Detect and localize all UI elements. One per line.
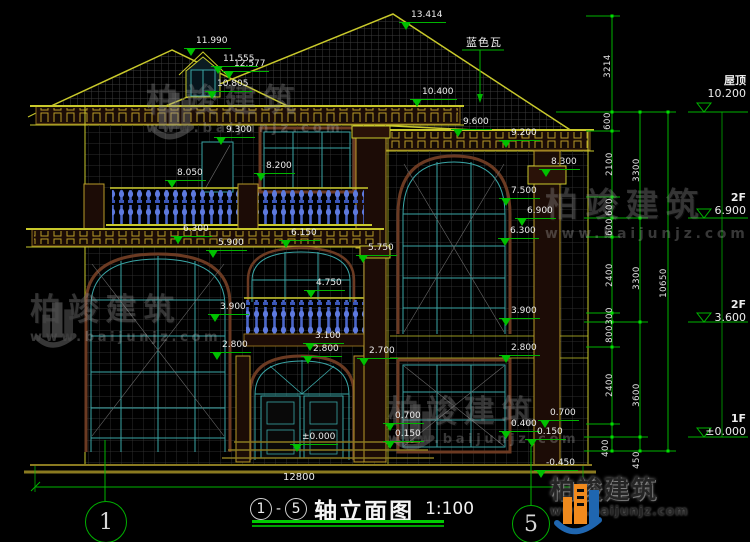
- axis-number: 5: [524, 512, 538, 537]
- floor-name: 1F: [688, 412, 746, 425]
- dimension-text: 3600: [632, 383, 642, 407]
- floor-level-label: 屋顶 10.200: [688, 74, 746, 100]
- dimension-text: 400: [601, 439, 611, 457]
- dimension-text: 800: [605, 325, 615, 343]
- elevation-value: 9.600: [463, 117, 489, 127]
- elevation-value: 6.300: [183, 224, 209, 234]
- elevation-label: 13.414: [399, 10, 446, 23]
- elevation-label: 0.700: [538, 408, 579, 421]
- brand-logo-icon: [550, 477, 608, 539]
- elevation-label: 9.300: [214, 125, 255, 138]
- elevation-value: 3.900: [220, 302, 246, 312]
- elevation-value: 9.200: [511, 128, 537, 138]
- roof-material-note: 蓝色瓦: [466, 34, 502, 50]
- watermark: 柏竣建筑 www.baijunjz.com: [30, 294, 221, 345]
- elevation-label: 8.200: [254, 161, 295, 174]
- floor-elevation: 10.200: [688, 87, 746, 100]
- elevation-value: 8.050: [177, 168, 203, 178]
- elevation-label: 2.700: [357, 346, 398, 359]
- elevation-label: 8.050: [165, 168, 206, 181]
- elevation-value: 5.750: [368, 243, 394, 253]
- elevation-value: ±0.000: [302, 432, 335, 442]
- elevation-label: 3.100: [303, 331, 344, 344]
- floor-level-label: 1F ±0.000: [688, 412, 746, 438]
- elevation-value: -0.450: [546, 458, 575, 468]
- axis-bubble: 5: [512, 505, 550, 542]
- elevation-value: 2.800: [511, 343, 537, 353]
- floor-name: 2F: [688, 191, 746, 204]
- elevation-value: 2.800: [313, 344, 339, 354]
- elevation-label: 8.300: [539, 157, 580, 170]
- elevation-label: 9.600: [451, 117, 492, 130]
- elevation-value: 11.555: [223, 54, 255, 64]
- cad-elevation-screenshot: 柏竣建筑 www.baijunjz.com 柏竣建筑 www.baijunjz.…: [0, 0, 750, 542]
- overall-width-dimension: 12800: [283, 472, 315, 483]
- floor-level-label: 2F 3.600: [688, 298, 746, 324]
- elevation-value: 2.700: [369, 346, 395, 356]
- axis-ref-end: 5: [285, 498, 307, 520]
- dimension-text: 450: [632, 451, 642, 469]
- elevation-label: 7.500: [499, 186, 540, 199]
- axis-ref-separator: -: [276, 501, 281, 517]
- elevation-label: 3.900: [208, 302, 249, 315]
- elevation-label: 9.200: [499, 128, 540, 141]
- elevation-value: 6.150: [291, 228, 317, 238]
- floor-elevation: 6.900: [688, 204, 746, 217]
- elevation-label: 5.750: [356, 243, 397, 256]
- elevation-value: 4.750: [316, 278, 342, 288]
- watermark-logo-icon: [388, 396, 441, 455]
- dimension-text: 600: [605, 218, 615, 236]
- elevation-label: 4.750: [304, 278, 345, 291]
- watermark-logo-icon: [30, 294, 83, 353]
- elevation-value: 6.300: [510, 226, 536, 236]
- elevation-value: 10.400: [422, 87, 454, 97]
- watermark-logo-icon: [146, 84, 200, 145]
- floor-name: 2F: [688, 298, 746, 311]
- dimension-text: 3300: [632, 158, 642, 182]
- elevation-label: 11.555: [211, 54, 258, 67]
- watermark-url: www.baijunjz.com: [545, 226, 749, 242]
- drawing-scale: 1:100: [425, 499, 474, 519]
- floor-elevation: ±0.000: [688, 425, 746, 438]
- elevation-label: 2.800: [301, 344, 342, 357]
- elevation-value: 10.805: [217, 79, 249, 89]
- elevation-label: 10.400: [410, 87, 457, 100]
- title-underline: [252, 520, 444, 523]
- elevation-label: 6.150: [279, 228, 320, 241]
- elevation-label: 6.300: [171, 224, 212, 237]
- elevation-value: 5.900: [218, 238, 244, 248]
- floor-name: 屋顶: [688, 74, 746, 87]
- dimension-text: 2400: [605, 263, 615, 287]
- elevation-label: -0.450: [534, 458, 578, 471]
- dimension-text: 600: [605, 198, 615, 216]
- elevation-label: 5.900: [206, 238, 247, 251]
- dimension-text: 600: [603, 112, 613, 130]
- elevation-value: 6.900: [527, 206, 553, 216]
- elevation-value: 0.150: [537, 427, 563, 437]
- floor-elevation: 3.600: [688, 311, 746, 324]
- elevation-label: 0.150: [525, 427, 566, 440]
- elevation-value: 2.800: [222, 340, 248, 350]
- floor-level-label: 2F 6.900: [688, 191, 746, 217]
- elevation-value: 7.500: [511, 186, 537, 196]
- elevation-value: 0.700: [395, 411, 421, 421]
- dimension-text: 3214: [603, 54, 613, 78]
- dimension-text: 10650: [659, 268, 669, 298]
- elevation-label: 6.900: [515, 206, 556, 219]
- dimension-text: 2100: [605, 152, 615, 176]
- elevation-value: 8.300: [551, 157, 577, 167]
- elevation-label: 6.300: [498, 226, 539, 239]
- elevation-label: 2.800: [499, 343, 540, 356]
- elevation-label: 2.800: [210, 340, 251, 353]
- elevation-label: 10.805: [205, 79, 252, 92]
- elevation-value: 8.200: [266, 161, 292, 171]
- elevation-label: 0.150: [383, 429, 424, 442]
- dimension-text: 300: [605, 307, 615, 325]
- elevation-label: ±0.000: [290, 432, 338, 445]
- dimension-text: 3300: [632, 266, 642, 290]
- elevation-value: 11.990: [196, 36, 228, 46]
- elevation-label: 11.990: [184, 36, 231, 49]
- axis-bubble: 1: [85, 501, 127, 542]
- elevation-value: 0.700: [550, 408, 576, 418]
- axis-ref-start: 1: [250, 498, 272, 520]
- elevation-value: 13.414: [411, 10, 443, 20]
- brand-logo: 柏竣建筑 www.baijunjz.com: [550, 477, 689, 518]
- elevation-label: 0.700: [383, 411, 424, 424]
- axis-number: 1: [99, 510, 113, 535]
- elevation-label: 3.900: [499, 306, 540, 319]
- dimension-text: 2400: [605, 373, 615, 397]
- elevation-value: 0.150: [395, 429, 421, 439]
- elevation-value: 3.900: [511, 306, 537, 316]
- elevation-value: 3.100: [315, 331, 341, 341]
- title-underline-2: [252, 525, 444, 527]
- elevation-value: 9.300: [226, 125, 252, 135]
